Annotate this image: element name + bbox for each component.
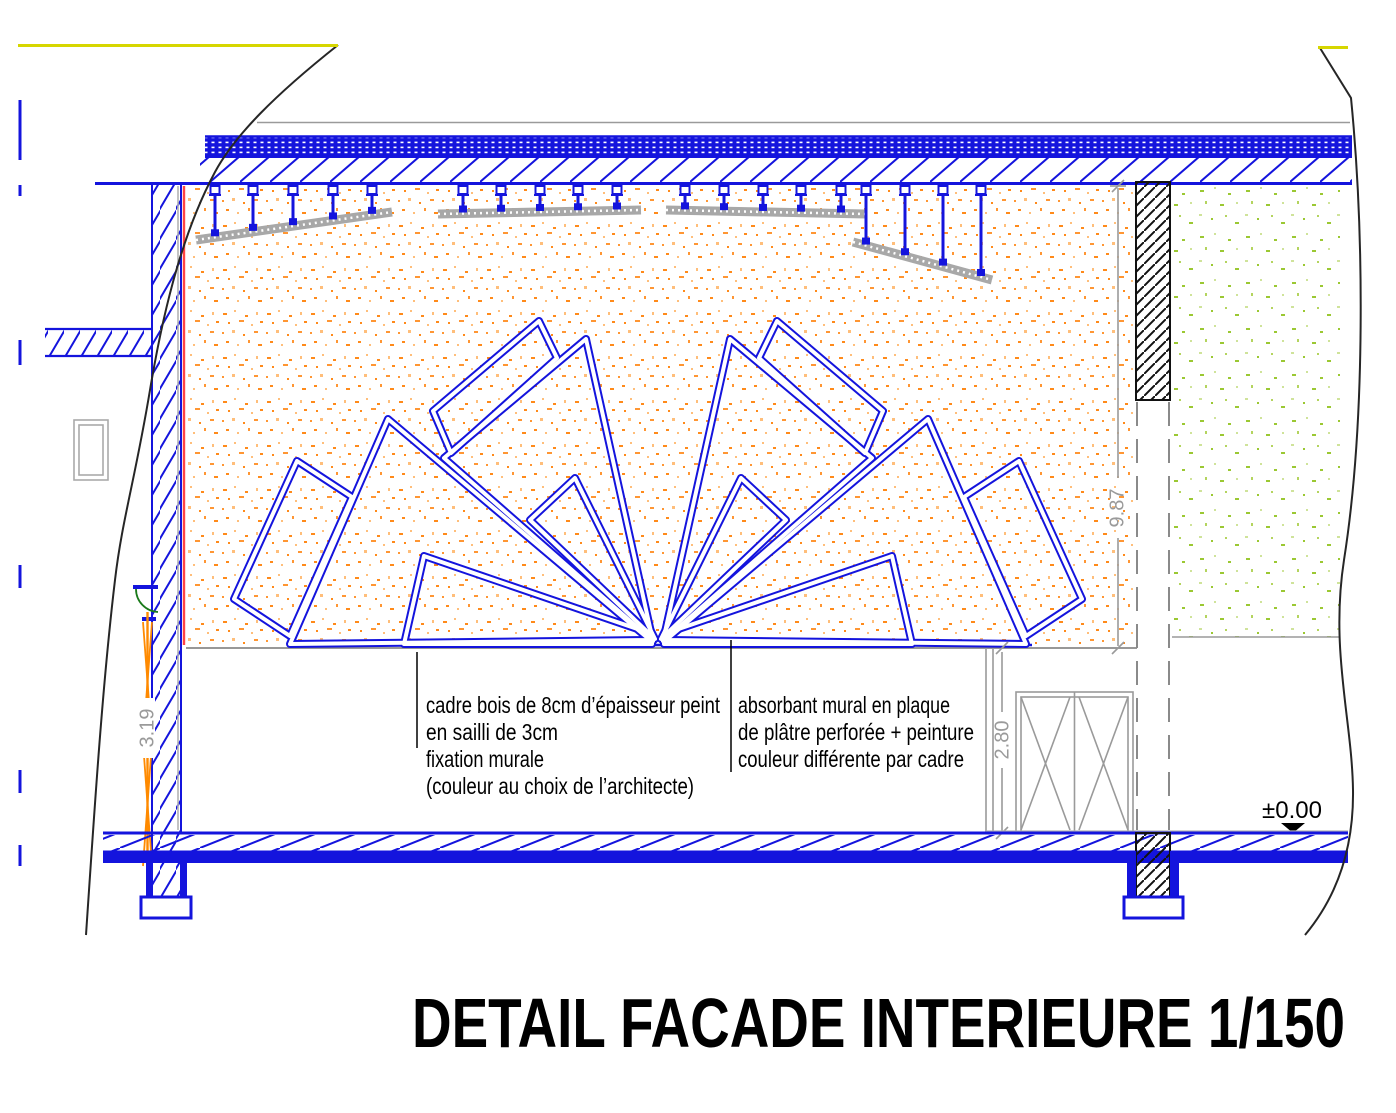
hanger-rod	[942, 194, 945, 261]
hanger-rod	[865, 194, 868, 240]
hanger-foot	[574, 203, 582, 210]
facade-section-svg: 3.19 9.87	[0, 0, 1396, 1113]
hanger-foot	[249, 224, 257, 231]
absorber-note-line3: couleur différente par cadre	[738, 746, 964, 772]
hanger-foot	[939, 259, 947, 266]
hanger-foot	[681, 202, 689, 209]
ceiling-hatch-band	[200, 158, 1352, 183]
level-label: ±0.00	[1262, 797, 1322, 824]
hanger-foot	[211, 229, 219, 236]
absorber-note: absorbant mural en plaque de plâtre perf…	[738, 692, 974, 772]
frame-note-line3: fixation murale	[426, 746, 544, 772]
hanger-bracket	[862, 186, 871, 194]
dim-9-87: 9.87	[1106, 489, 1128, 528]
architectural-drawing: 3.19 9.87	[0, 0, 1396, 1113]
dim-3-19: 3.19	[136, 709, 158, 748]
frame-note-line4: (couleur au choix de l’architecte)	[426, 773, 694, 799]
hanger-rod	[252, 194, 255, 226]
frame-note-line2: en sailli de 3cm	[426, 719, 558, 745]
hanger-rod	[904, 194, 907, 250]
frame-note: cadre bois de 8cm d’épaisseur peint en s…	[426, 692, 720, 799]
hanger-bracket	[681, 186, 690, 194]
hanger-foot	[720, 203, 728, 210]
hanger-foot	[613, 202, 621, 209]
hanger-rod	[462, 194, 465, 208]
hanger-bracket	[837, 186, 846, 194]
hanger-foot	[536, 204, 544, 211]
structural-column	[1136, 182, 1170, 830]
double-door	[1016, 692, 1133, 832]
hanger-bracket	[574, 186, 583, 194]
door-opening: 2.80	[986, 642, 1133, 839]
hanger-foot	[901, 248, 909, 255]
hanger-bracket	[759, 186, 768, 194]
hanger-rod	[980, 194, 983, 271]
level-marker: ±0.00	[1262, 797, 1322, 833]
hanger-bracket	[249, 186, 258, 194]
hanger-foot	[497, 205, 505, 212]
hanger-foot	[977, 269, 985, 276]
hanger-foot	[368, 207, 376, 214]
hanger-foot	[289, 218, 297, 225]
hanger-bracket	[720, 186, 729, 194]
absorber-note-line2: de plâtre perforée + peinture	[738, 719, 974, 745]
left-wall	[152, 185, 184, 897]
hanger-bracket	[797, 186, 806, 194]
hanger-rod	[840, 194, 843, 208]
hanger-bracket	[901, 186, 910, 194]
hanger-foot	[329, 212, 337, 219]
hanger-rod	[371, 194, 374, 209]
dim-2-80: 2.80	[991, 721, 1013, 760]
ceiling-slab-band	[205, 137, 1352, 157]
ceiling-structure	[95, 123, 1352, 184]
hanger-foot	[459, 206, 467, 213]
hanger-rod	[292, 194, 295, 220]
left-floor-slab	[45, 329, 152, 356]
absorber-note-line1: absorbant mural en plaque	[738, 692, 950, 718]
drawing-title: DETAIL FACADE INTERIEURE 1/150	[412, 984, 1345, 1062]
frame-note-line1: cadre bois de 8cm d’épaisseur peint	[426, 692, 720, 718]
hanger-bracket	[977, 186, 986, 194]
hanger-foot	[837, 206, 845, 213]
hanger-foot	[862, 238, 870, 245]
hanger-foot	[797, 205, 805, 212]
hanger-rod	[332, 194, 335, 214]
hanger-bracket	[613, 186, 622, 194]
hanger-bracket	[459, 186, 468, 194]
left-door-frame	[74, 420, 108, 480]
hanger-bracket	[329, 186, 338, 194]
hanger-rod	[214, 194, 217, 231]
hanger-bracket	[368, 186, 377, 194]
hanger-bracket	[939, 186, 948, 194]
green-wall-field	[1172, 185, 1340, 637]
hanger-bracket	[497, 186, 506, 194]
hanger-bracket	[289, 186, 298, 194]
hanger-bracket	[536, 186, 545, 194]
hanger-foot	[759, 204, 767, 211]
hanger-bracket	[211, 186, 220, 194]
plaster-wall-field	[186, 185, 1133, 648]
